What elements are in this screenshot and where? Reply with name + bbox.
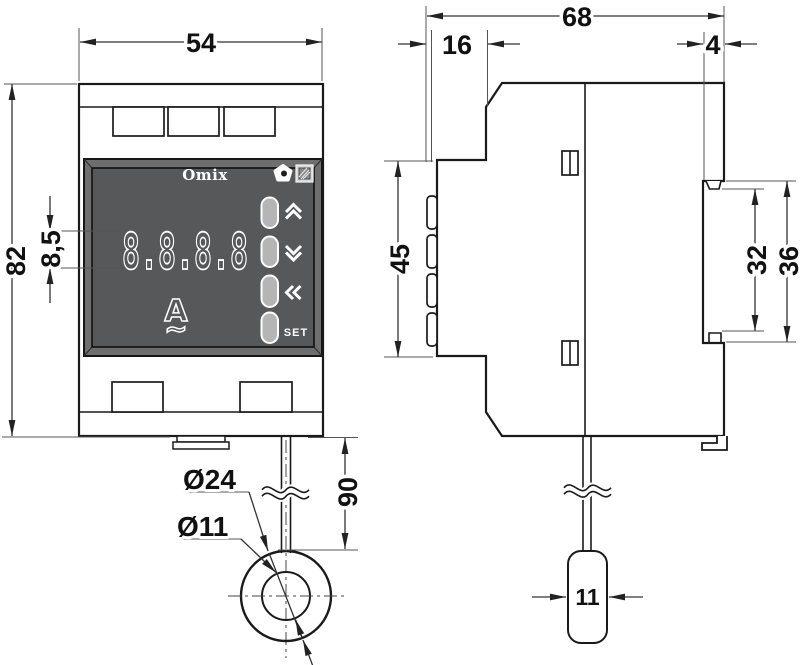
terminal-slot (112, 382, 163, 412)
button-bump (427, 196, 437, 229)
side-view: 11 (427, 83, 727, 643)
dim-din-lip-depth-label: 4 (705, 30, 720, 60)
seven-segment-display: 8.8.8.8 (122, 223, 248, 281)
side-latch-top (562, 151, 578, 175)
ac-symbol: ~ (164, 312, 187, 345)
dim-front-width-label: 54 (186, 28, 216, 58)
terminal-slot (240, 382, 292, 412)
break-symbol (564, 485, 611, 497)
dim-ct-body-width: 11 (575, 584, 600, 610)
certification-mark-icon (296, 165, 313, 182)
side-outline (437, 83, 724, 436)
button-bump (427, 235, 437, 268)
front-bezel: Omix 8.8.8.8 A ~ SET (84, 159, 322, 356)
ct-cable-side (564, 436, 611, 551)
din-clip-front (173, 436, 229, 449)
din-hook-top (706, 181, 721, 189)
button-bump (427, 313, 437, 346)
terminal-slot (168, 107, 219, 136)
technical-drawing-page: Omix 8.8.8.8 A ~ SET (0, 0, 800, 665)
omix-eye-logo-icon (275, 166, 291, 181)
dimension-din-slot-height: 32 (722, 189, 772, 331)
din-hook-bottom (709, 333, 721, 343)
brand-logo-text: Omix (182, 166, 228, 184)
front-view: Omix 8.8.8.8 A ~ SET (79, 84, 346, 658)
dim-ct-outer-diameter-label: Ø24 (183, 464, 236, 495)
dim-din-slot-height-label: 32 (742, 245, 772, 275)
terminal-slot (224, 107, 275, 136)
dim-digit-height-label: 8,5 (36, 230, 66, 268)
button-set (262, 313, 279, 344)
current-transformer-side: 11 (532, 551, 643, 643)
button-up (262, 198, 279, 229)
dim-ct-hole-diameter-label: Ø11 (177, 511, 228, 542)
dim-front-height-label: 82 (1, 246, 31, 276)
dim-din-slot-full-height-label: 36 (774, 246, 800, 276)
ct-cable-front (262, 436, 309, 658)
button-back (262, 276, 279, 308)
set-button-label: SET (284, 327, 308, 339)
dim-bezel-depth-label: 16 (442, 30, 472, 60)
side-buttons-profile (427, 196, 437, 346)
button-bump (427, 274, 437, 307)
eye-logo-pupil (281, 171, 287, 177)
current-transformer-front (228, 551, 346, 641)
din-latch-bottom (702, 436, 727, 450)
dimensional-drawing: Omix 8.8.8.8 A ~ SET (0, 0, 800, 665)
dim-cable-length-label: 90 (333, 477, 363, 507)
din-clip-lower (173, 442, 229, 449)
side-latch-bottom (562, 341, 578, 365)
dim-bezel-height-label: 45 (385, 244, 415, 274)
din-clip-upper (177, 436, 225, 442)
terminal-slot (113, 107, 164, 136)
dimension-bezel-height: 45 (384, 161, 433, 357)
dimension-ct-hole-diameter: Ø11 (177, 511, 302, 637)
button-down (262, 237, 279, 268)
break-symbol (262, 487, 309, 499)
dim-total-depth-label: 68 (562, 2, 592, 32)
dimension-front-width: 54 (79, 28, 322, 81)
